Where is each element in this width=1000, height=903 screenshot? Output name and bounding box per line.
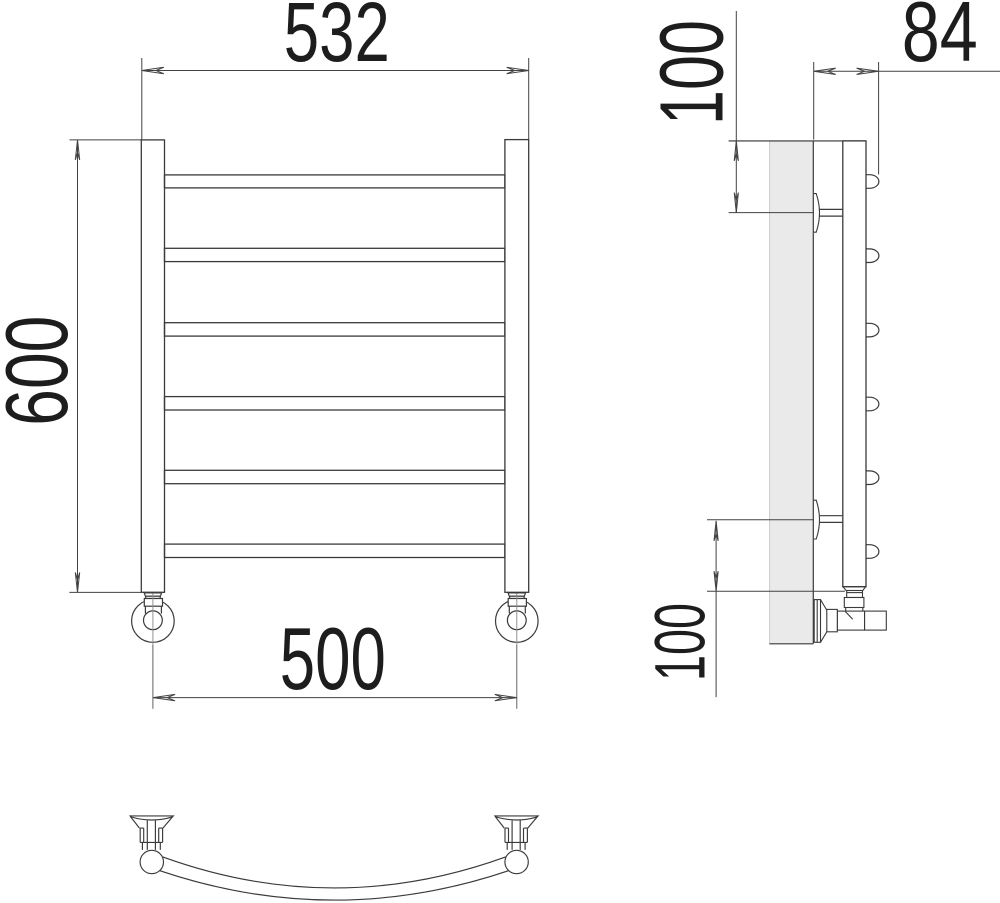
svg-text:100: 100 (642, 603, 721, 681)
svg-text:100: 100 (642, 20, 742, 125)
svg-text:500: 500 (280, 609, 386, 708)
svg-text:84: 84 (902, 0, 978, 80)
svg-text:600: 600 (0, 316, 86, 426)
svg-text:532: 532 (284, 0, 390, 79)
